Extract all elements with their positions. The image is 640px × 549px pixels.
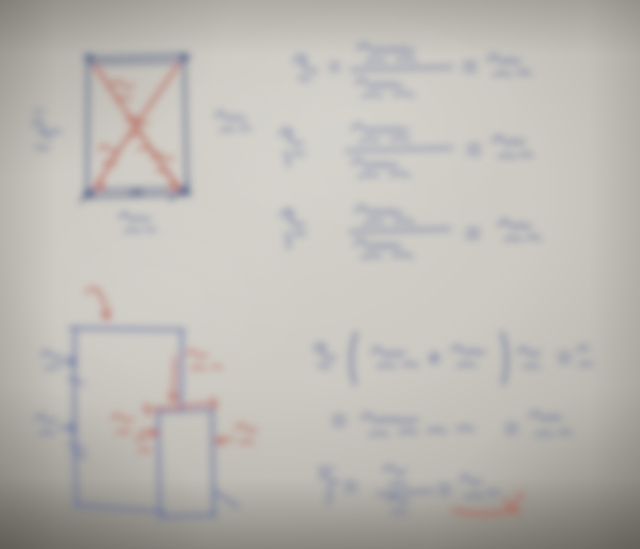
- ink-strokes-layer: [33, 44, 592, 518]
- reaction-equations: [280, 44, 540, 258]
- sum-bracket-open: [351, 333, 356, 384]
- notch-right-label: [236, 425, 256, 443]
- edge-tick-upper: [68, 378, 84, 384]
- notch-height-arrow: [169, 357, 178, 401]
- joint-bottom-right: [183, 192, 188, 193]
- eq2-numerator: [352, 124, 409, 142]
- result-underline: [454, 510, 521, 514]
- eq1-result: [488, 55, 530, 75]
- left-force-label: [33, 120, 60, 148]
- sum-factor: [518, 348, 539, 367]
- notch-right-edge: [212, 409, 214, 516]
- notch-bottom-edge: [160, 515, 216, 517]
- handwriting-ink: [0, 0, 640, 549]
- eq3-denominator: [355, 240, 412, 258]
- eq3-symbol: [281, 210, 305, 248]
- eq2-equals: [468, 146, 480, 153]
- eq1-symbol: [294, 56, 317, 79]
- eq1-numerator: [358, 44, 415, 62]
- sum-plus: [429, 352, 440, 364]
- xbar-equals-2: [439, 486, 450, 493]
- xbar-equals: [345, 483, 356, 490]
- sum-rhs: [578, 347, 592, 365]
- sum-symbol: [314, 344, 335, 366]
- shape-bottom-edge: [76, 505, 164, 512]
- notch-right-arrow: [216, 437, 233, 445]
- calc-terms: [362, 414, 473, 435]
- shape-right-upper-edge: [181, 330, 182, 409]
- bottom-force-label: [120, 213, 155, 232]
- xbar-result: [460, 476, 498, 497]
- eq2-denominator: [352, 159, 409, 177]
- result-checkmark: [505, 493, 523, 509]
- eq1-equals-left: [330, 64, 339, 70]
- xbar-fraction-bar: [377, 491, 433, 494]
- sum-bracket-close: [502, 333, 507, 384]
- height-label-upper: [42, 351, 61, 369]
- eq3-numerator: [356, 206, 413, 224]
- xbar-symbol: [319, 469, 338, 504]
- notebook-photo: [0, 0, 640, 549]
- eq1-equals-right: [464, 63, 476, 70]
- sum-term-2: [452, 346, 484, 366]
- eq2-result: [493, 136, 532, 157]
- notch-left-arrow: [140, 429, 157, 437]
- shape-corner-diagonal: [214, 491, 238, 507]
- top-red-arrow: [97, 289, 109, 319]
- calc-equals-2: [506, 425, 517, 432]
- joint-top-right: [182, 56, 187, 57]
- frame-top-inner-edge: [89, 62, 184, 64]
- height-label-lower: [36, 415, 55, 434]
- eq1-fraction-bar: [351, 67, 452, 70]
- right-force-label: [216, 112, 250, 131]
- notch-height-label: [186, 351, 221, 369]
- eq3-result: [499, 220, 540, 240]
- notch-corner-tick: [136, 437, 150, 451]
- calc-equals: [333, 417, 345, 424]
- calc-result: [530, 412, 571, 435]
- composite-shape-diagram: [36, 288, 256, 518]
- sum-term-1: [372, 348, 417, 367]
- sum-equals: [559, 354, 570, 361]
- eq3-equals: [467, 230, 479, 237]
- notch-left-label: [112, 415, 133, 433]
- braced-section-diagram: [33, 55, 250, 232]
- notch-left-edge: [158, 411, 160, 518]
- eq1-denominator: [356, 79, 413, 97]
- eq2-symbol: [280, 129, 304, 166]
- eq3-fraction-bar: [350, 229, 450, 232]
- bottom-joint-mark: [132, 190, 141, 196]
- xbar-denominator: [388, 497, 408, 513]
- edge-tick-lower: [68, 443, 86, 458]
- eq2-fraction-bar: [346, 148, 452, 151]
- shape-left-edge: [74, 328, 77, 507]
- left-force-tick: [35, 110, 43, 113]
- centroid-equations: [314, 333, 592, 514]
- xbar-numerator: [384, 466, 406, 485]
- top-red-tick: [86, 288, 97, 293]
- notch-top-edge: [159, 410, 211, 412]
- shape-top-edge: [70, 328, 184, 330]
- joint-top-left: [87, 57, 92, 58]
